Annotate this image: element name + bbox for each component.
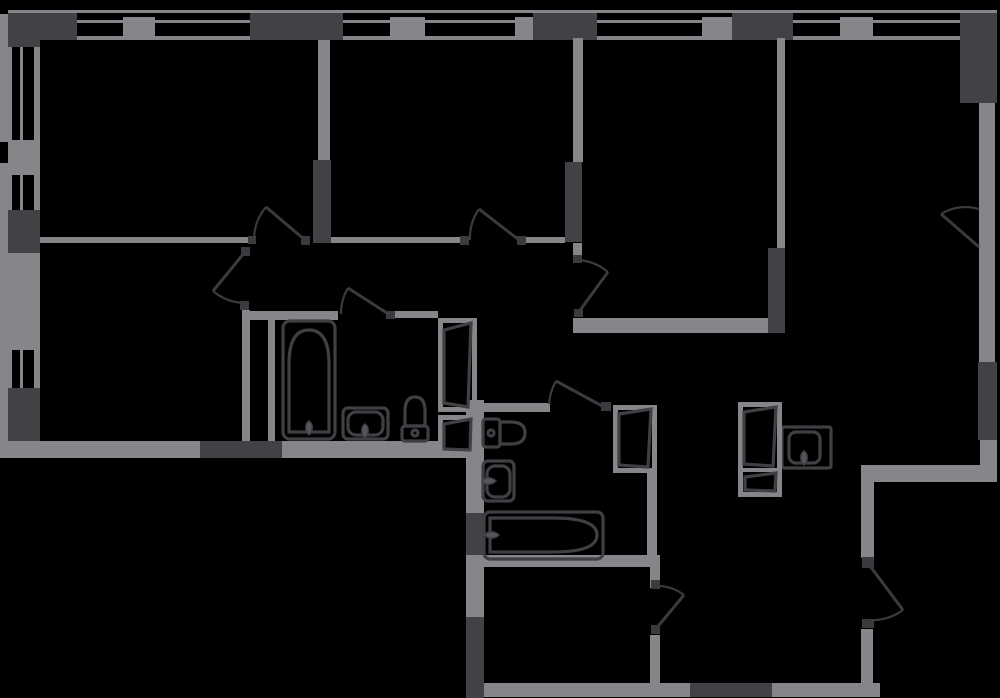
wall-segment [573,38,583,162]
window-glazing [873,20,960,23]
wall-segment [526,237,565,243]
window-sill [425,36,515,40]
wall-segment-dark [978,13,997,103]
wall-segment-dark [466,513,484,557]
wall-segment [980,440,997,468]
wall-segment [331,237,460,243]
wall-segment [242,310,250,441]
door-hinge-block [460,236,469,245]
window-sill [77,36,123,40]
bathtub-1-tap [306,421,312,435]
floor-plan-svg [0,0,1000,698]
door-bedroom-mid-right-leaf [578,272,608,313]
wall-pier [8,13,40,47]
door-entrance-leaf [870,566,903,610]
wall-segment-dark [466,617,484,698]
window-sill [873,36,960,40]
door-hinge-block [651,580,660,589]
window-sill [343,36,390,40]
toilet-2 [483,419,500,447]
window-mullion [390,17,425,40]
wall-segment [573,243,582,255]
window-mullion [702,17,732,40]
window-sill [793,36,840,40]
toilet-1 [412,430,418,436]
wall-segment-dark [313,160,331,243]
vent-shaft-1-lower [444,419,471,450]
window-mullion [515,17,533,40]
bathtub-2 [490,518,597,552]
wall-segment-dark [200,441,282,458]
door-bathroom-2-arc [549,381,556,404]
door-bedroom-top-mid-arc [470,209,479,240]
wall-segment [318,40,330,160]
window-band-right [979,103,995,362]
wall-pier [732,13,793,40]
vent-shaft-3 [744,407,776,466]
wall-segment [573,318,770,333]
window-sill [155,36,250,40]
door-hinge-block [862,557,874,568]
window-sill [34,47,40,140]
window-swing-living-arc [941,207,979,214]
kitchen-sink-tap [801,451,807,465]
wall-segment [861,629,873,683]
window-mullion [123,17,155,40]
door-bedroom-mid-right-arc [578,260,608,272]
door-bedroom-top-mid-leaf [479,209,519,240]
toilet-2 [488,430,494,436]
window-glazing [155,20,250,23]
door-bedroom-top-left-leaf [266,207,305,240]
door-storage-leaf [655,595,684,630]
window-glazing [20,350,23,388]
sink-bathroom-2-tap [482,478,496,484]
wall-segment-dark [768,248,785,333]
wall-pier [250,13,343,40]
wall-segment [647,473,657,565]
window-glazing [77,20,123,23]
window-sill [34,175,40,210]
wall-pier [8,388,40,441]
wall-segment [394,311,438,318]
door-bathroom-2-leaf [556,381,604,407]
wall-segment [484,683,690,697]
facade-line-top [8,10,997,13]
floor-plan [0,0,1000,698]
wall-segment [466,403,550,412]
sink-bathroom-1-tap [362,424,368,438]
window-mullion [8,140,40,175]
door-bedroom-bottom-left-leaf [213,252,245,291]
vent-shaft-3 [745,473,776,491]
window-glazing [597,20,702,23]
vent-shaft-2 [619,409,651,467]
bathtub-2-tap [485,532,499,538]
wall-segment [40,237,248,243]
wall-segment [777,38,785,248]
window-swing-living-leaf [941,214,979,247]
wall-segment [863,465,997,482]
wall-segment-dark [565,162,582,242]
window-sill [34,350,40,388]
window-mullion [840,17,873,40]
vent-shaft-1-upper [444,323,471,407]
wall-segment [8,441,200,458]
wall-segment [268,318,275,441]
wall-segment [772,683,880,697]
window-glazing [425,20,515,23]
wall-segment-dark [978,362,997,440]
wall-segment [466,555,659,567]
window-glazing [20,47,23,140]
door-hinge-block [573,255,582,263]
door-bedroom-bottom-left-arc [213,291,244,303]
door-bathroom-1-leaf [348,288,390,315]
door-bedroom-top-left-arc [254,207,266,240]
window-glazing [343,20,390,23]
toilet-1 [402,426,428,441]
wall-segment [8,253,40,350]
toilet-1 [405,397,425,426]
window-sill [597,36,702,40]
window-glazing [793,20,840,23]
toilet-2 [500,422,525,444]
door-entrance-arc [866,610,903,620]
wall-segment-dark [690,683,772,697]
bathtub-1 [289,330,329,432]
wall-pier [8,210,40,253]
window-glazing [20,175,23,210]
wall-segment [650,635,660,683]
wall-segment [242,311,338,320]
door-bathroom-1-arc [341,288,348,314]
wall-pier [533,13,597,40]
